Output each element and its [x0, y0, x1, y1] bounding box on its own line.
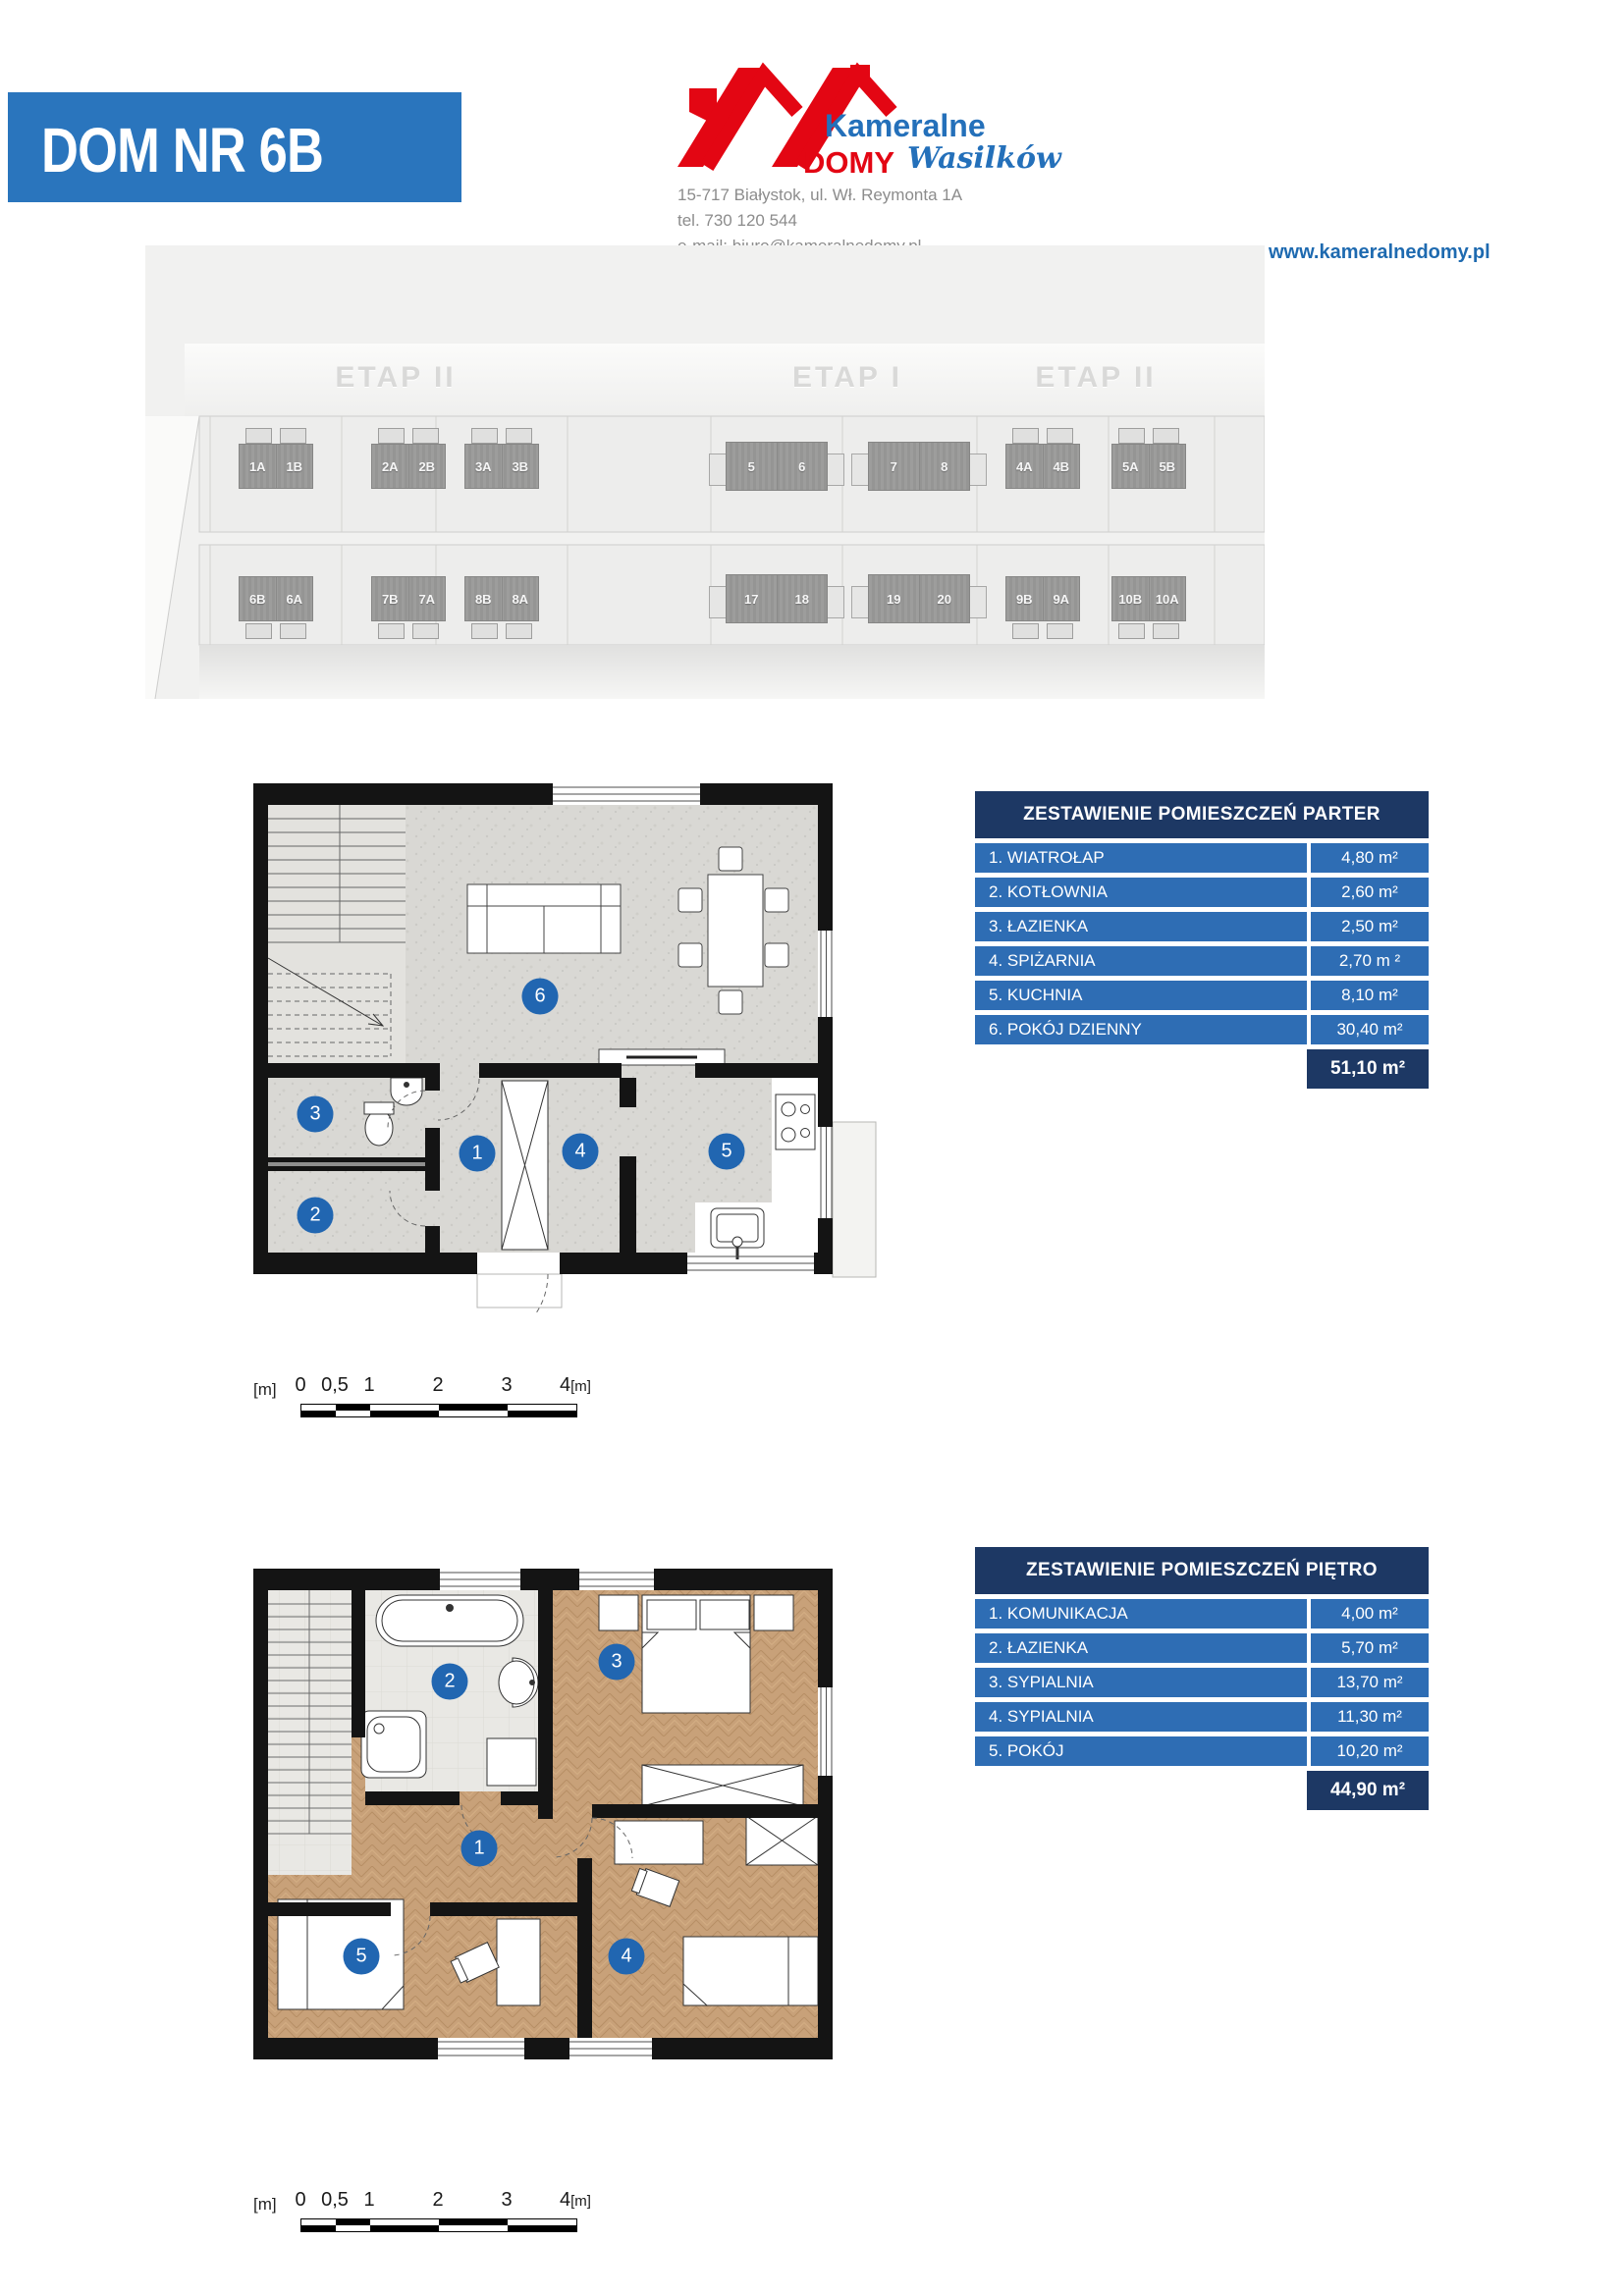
- scale-ruler: [300, 2218, 577, 2232]
- room-label: 5. POKÓJ: [975, 1736, 1307, 1766]
- table-rows: 1. WIATROŁAP4,80 m²2. KOTŁOWNIA2,60 m²3.…: [975, 843, 1429, 1044]
- brand-location: Wasilków: [907, 141, 1061, 176]
- porch: [477, 1274, 562, 1308]
- scale-tick-label: 2: [432, 1374, 443, 1397]
- house-label: 10B: [1112, 577, 1149, 620]
- tv-cabinet: [599, 1049, 725, 1065]
- ground-floor-table: ZESTAWIENIE POMIESZCZEŃ PARTER 1. WIATRO…: [975, 791, 1429, 1089]
- upper-floor-table: ZESTAWIENIE POMIESZCZEŃ PIĘTRO 1. KOMUNI…: [975, 1547, 1429, 1810]
- garage-block: [412, 428, 439, 444]
- room-area: 2,50 m²: [1311, 912, 1429, 941]
- garage-block: [471, 428, 498, 444]
- garage-block: [245, 428, 272, 444]
- house-block: 78: [868, 442, 970, 491]
- house-block: 1A1B: [239, 444, 313, 489]
- room-area: 10,20 m²: [1311, 1736, 1429, 1766]
- house-label: 19: [869, 575, 919, 622]
- scale-tick-label: 1: [363, 1374, 374, 1397]
- room-label: 4. SPIŻARNIA: [975, 946, 1307, 976]
- house-label: 2A: [372, 445, 408, 488]
- garage-block: [1153, 623, 1179, 639]
- garage-block: [1153, 428, 1179, 444]
- room-area: 2,70 m ²: [1311, 946, 1429, 976]
- room-row: 1. KOMUNIKACJA4,00 m²: [975, 1599, 1429, 1629]
- house-label: 6B: [240, 577, 276, 620]
- house-block: 10B10A: [1111, 576, 1186, 621]
- room-area: 11,30 m²: [1311, 1702, 1429, 1732]
- room-marker: 5: [709, 1134, 745, 1170]
- room-row: 4. SYPIALNIA11,30 m²: [975, 1702, 1429, 1732]
- contact-phone: tel. 730 120 544: [677, 208, 962, 234]
- room-marker: 1: [461, 1831, 498, 1867]
- site-plan: ETAP II ETAP I ETAP II 1A1B2A2B3A3B56784…: [145, 245, 1265, 699]
- scale-tick-label: 3: [501, 2189, 512, 2212]
- room-marker: 6: [522, 979, 559, 1015]
- title-banner: DOM NR 6B: [8, 92, 461, 202]
- room-area: 13,70 m²: [1311, 1668, 1429, 1697]
- room-label: 5. KUCHNIA: [975, 981, 1307, 1010]
- house-label: 17: [727, 575, 777, 622]
- total-area: 51,10 m²: [1307, 1049, 1429, 1089]
- house-label: 8A: [502, 577, 539, 620]
- house-label: 7A: [408, 577, 446, 620]
- room-row: 3. SYPIALNIA13,70 m²: [975, 1668, 1429, 1697]
- contact-address: 15-717 Białystok, ul. Wł. Reymonta 1A: [677, 183, 962, 208]
- scale-unit-suffix: [m]: [570, 2193, 591, 2210]
- stage-label-etap2-right: ETAP II: [1035, 361, 1156, 395]
- scale-bar-upper: [m] 00,51234[m]: [253, 2183, 646, 2246]
- house-block: 1920: [868, 574, 970, 623]
- garage-block: [1118, 428, 1145, 444]
- garage-block: [1047, 428, 1073, 444]
- house-label: 6: [777, 443, 828, 490]
- house-block: 9B9A: [1005, 576, 1080, 621]
- website-link[interactable]: www.kameralnedomy.pl: [1269, 241, 1490, 264]
- page: DOM NR 6B Kameralne DOMY Wasilków 15-717…: [0, 0, 1624, 2296]
- house-label: 5: [727, 443, 777, 490]
- house-block: 2A2B: [371, 444, 446, 489]
- page-title: DOM NR 6B: [41, 114, 323, 187]
- house-label: 7B: [372, 577, 408, 620]
- garage-block: [280, 623, 306, 639]
- room-marker: 4: [563, 1134, 599, 1170]
- garage-block: [506, 623, 532, 639]
- room-row: 2. KOTŁOWNIA2,60 m²: [975, 878, 1429, 907]
- garage-block: [471, 623, 498, 639]
- scale-tick-label: 0,5: [321, 1374, 349, 1397]
- scale-tick-label: 3: [501, 1374, 512, 1397]
- house-label: 6A: [276, 577, 313, 620]
- house-label: 5B: [1149, 445, 1186, 488]
- scale-tick-label: 2: [432, 2189, 443, 2212]
- table-total-row: 44,90 m²: [975, 1771, 1429, 1810]
- stage-label-etap2-left: ETAP II: [335, 361, 456, 395]
- room-area: 4,80 m²: [1311, 843, 1429, 873]
- house-label: 1B: [276, 445, 313, 488]
- scale-tick-label: 0,5: [321, 2189, 349, 2212]
- ground-floor-plan: 123456: [253, 778, 882, 1313]
- annex-block: [967, 454, 987, 486]
- house-label: 9B: [1006, 577, 1043, 620]
- scale-unit-suffix: [m]: [570, 1378, 591, 1395]
- garage-block: [1012, 623, 1039, 639]
- house-label: 8: [919, 443, 970, 490]
- room-label: 2. ŁAZIENKA: [975, 1633, 1307, 1663]
- house-label: 9A: [1043, 577, 1080, 620]
- house-block: 8B8A: [464, 576, 539, 621]
- company-logo: Kameralne DOMY Wasilków: [677, 51, 1149, 188]
- scale-tick-label: 0: [295, 1374, 305, 1397]
- annex-block: [967, 586, 987, 618]
- house-block: 5A5B: [1111, 444, 1186, 489]
- brand-name: Kameralne: [825, 108, 986, 144]
- room-label: 3. SYPIALNIA: [975, 1668, 1307, 1697]
- room-marker: 2: [432, 1664, 468, 1700]
- bathroom-sink: [391, 1078, 422, 1105]
- room-area: 8,10 m²: [1311, 981, 1429, 1010]
- house-block: 56: [726, 442, 828, 491]
- room-area: 30,40 m²: [1311, 1015, 1429, 1044]
- brand-name-2: DOMY: [803, 145, 894, 181]
- room-marker: 2: [298, 1198, 334, 1234]
- house-label: 1A: [240, 445, 276, 488]
- scale-tick-label: 4[m]: [560, 1374, 591, 1397]
- garage-block: [378, 428, 405, 444]
- toilet: [364, 1102, 394, 1146]
- room-row: 6. POKÓJ DZIENNY30,40 m²: [975, 1015, 1429, 1044]
- table-rows: 1. KOMUNIKACJA4,00 m²2. ŁAZIENKA5,70 m²3…: [975, 1599, 1429, 1766]
- room-row: 1. WIATROŁAP4,80 m²: [975, 843, 1429, 873]
- room-marker: 5: [344, 1939, 380, 1975]
- room-label: 6. POKÓJ DZIENNY: [975, 1015, 1307, 1044]
- house-label: 7: [869, 443, 919, 490]
- house-label: 5A: [1112, 445, 1149, 488]
- scale-unit: [m]: [253, 1380, 277, 1400]
- room-row: 2. ŁAZIENKA5,70 m²: [975, 1633, 1429, 1663]
- single-bed-bedroom4: [683, 1937, 818, 2005]
- annex-block: [825, 586, 844, 618]
- room-area: 5,70 m²: [1311, 1633, 1429, 1663]
- room-label: 1. KOMUNIKACJA: [975, 1599, 1307, 1629]
- house-label: 18: [777, 575, 828, 622]
- room-area: 2,60 m²: [1311, 878, 1429, 907]
- scale-bar-ground: [m] 00,51234[m]: [253, 1368, 646, 1431]
- house-block: 1718: [726, 574, 828, 623]
- sofa: [467, 884, 621, 953]
- room-marker: 3: [298, 1096, 334, 1133]
- scale-tick-label: 0: [295, 2189, 305, 2212]
- garage-block: [245, 623, 272, 639]
- house-block: 4A4B: [1005, 444, 1080, 489]
- room-marker: 4: [609, 1939, 645, 1975]
- terrace: [833, 1122, 876, 1277]
- house-label: 4B: [1043, 445, 1080, 488]
- table-total-row: 51,10 m²: [975, 1049, 1429, 1089]
- table-title: ZESTAWIENIE POMIESZCZEŃ PIĘTRO: [975, 1547, 1429, 1594]
- garage-block: [280, 428, 306, 444]
- room-row: 4. SPIŻARNIA2,70 m ²: [975, 946, 1429, 976]
- house-block: 3A3B: [464, 444, 539, 489]
- room-label: 4. SYPIALNIA: [975, 1702, 1307, 1732]
- house-label: 4A: [1006, 445, 1043, 488]
- house-block: 7B7A: [371, 576, 446, 621]
- total-area: 44,90 m²: [1307, 1771, 1429, 1810]
- house-label: 3B: [502, 445, 539, 488]
- room-row: 5. POKÓJ10,20 m²: [975, 1736, 1429, 1766]
- scale-ruler: [300, 1404, 577, 1417]
- scale-unit: [m]: [253, 2195, 277, 2215]
- site-plan-background: [145, 245, 1265, 699]
- stage-label-etap1: ETAP I: [792, 361, 902, 395]
- table-title: ZESTAWIENIE POMIESZCZEŃ PARTER: [975, 791, 1429, 838]
- room-label: 2. KOTŁOWNIA: [975, 878, 1307, 907]
- garage-block: [1012, 428, 1039, 444]
- room-marker: 1: [460, 1136, 496, 1172]
- washer: [487, 1738, 536, 1786]
- garage-block: [412, 623, 439, 639]
- house-label: 8B: [465, 577, 502, 620]
- garage-block: [506, 428, 532, 444]
- wardrobe-bedroom3: [642, 1765, 803, 1806]
- house-block: 6B6A: [239, 576, 313, 621]
- upper-floor-plan: 12345: [253, 1564, 882, 2099]
- house-label: 3A: [465, 445, 502, 488]
- house-label: 20: [919, 575, 970, 622]
- room-row: 5. KUCHNIA8,10 m²: [975, 981, 1429, 1010]
- scale-tick-label: 1: [363, 2189, 374, 2212]
- room-row: 3. ŁAZIENKA2,50 m²: [975, 912, 1429, 941]
- house-label: 10A: [1149, 577, 1186, 620]
- garage-block: [1047, 623, 1073, 639]
- wardrobe-bedroom4: [746, 1816, 818, 1865]
- scale-tick-label: 4[m]: [560, 2189, 591, 2212]
- shower: [361, 1711, 426, 1778]
- house-label: 2B: [408, 445, 446, 488]
- garage-block: [378, 623, 405, 639]
- room-label: 3. ŁAZIENKA: [975, 912, 1307, 941]
- room-label: 1. WIATROŁAP: [975, 843, 1307, 873]
- bathtub: [376, 1595, 523, 1646]
- hall-wardrobe: [502, 1081, 548, 1250]
- room-area: 4,00 m²: [1311, 1599, 1429, 1629]
- annex-block: [825, 454, 844, 486]
- stove: [776, 1095, 815, 1149]
- room-marker: 3: [599, 1644, 635, 1681]
- garage-block: [1118, 623, 1145, 639]
